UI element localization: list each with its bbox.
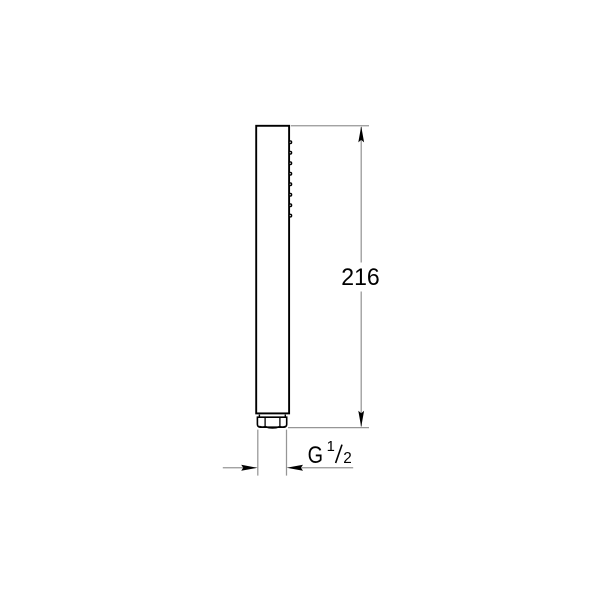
svg-text:G: G xyxy=(308,442,323,469)
svg-text:2: 2 xyxy=(343,450,352,467)
svg-text:216: 216 xyxy=(341,264,379,291)
svg-text:1: 1 xyxy=(327,439,335,455)
